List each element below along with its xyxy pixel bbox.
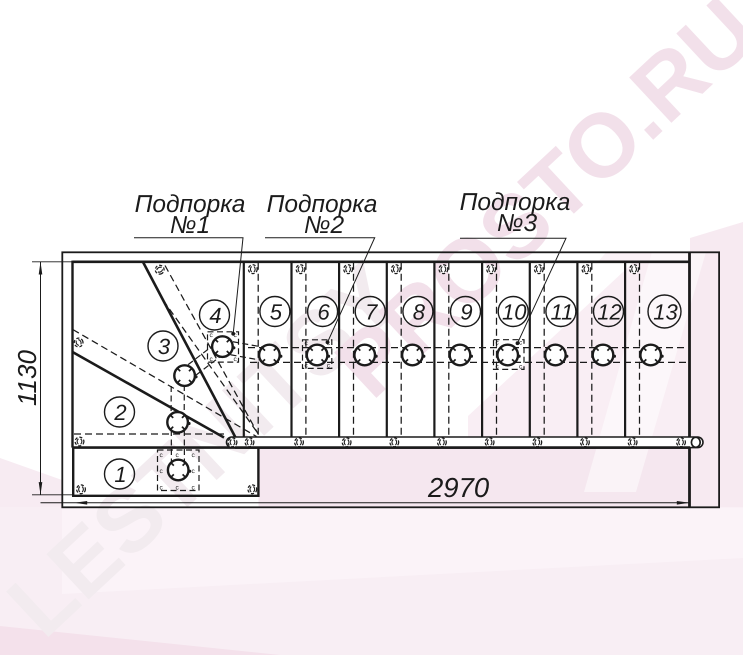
svg-text:10: 10 <box>502 300 527 325</box>
svg-text:3: 3 <box>158 334 171 359</box>
svg-text:№3: №3 <box>497 210 538 237</box>
svg-text:8: 8 <box>413 300 426 325</box>
svg-text:1130: 1130 <box>12 350 42 406</box>
svg-text:2970: 2970 <box>427 472 490 503</box>
svg-text:2: 2 <box>113 400 126 425</box>
svg-text:6: 6 <box>317 300 330 325</box>
svg-text:№1: №1 <box>170 212 210 239</box>
svg-text:№2: №2 <box>304 212 345 239</box>
svg-text:9: 9 <box>460 300 472 325</box>
svg-text:11: 11 <box>550 300 573 325</box>
svg-text:12: 12 <box>597 300 621 325</box>
svg-text:13: 13 <box>653 300 678 325</box>
svg-text:1: 1 <box>114 462 126 487</box>
svg-text:7: 7 <box>365 300 378 325</box>
svg-text:5: 5 <box>270 300 283 325</box>
svg-text:4: 4 <box>209 303 221 328</box>
